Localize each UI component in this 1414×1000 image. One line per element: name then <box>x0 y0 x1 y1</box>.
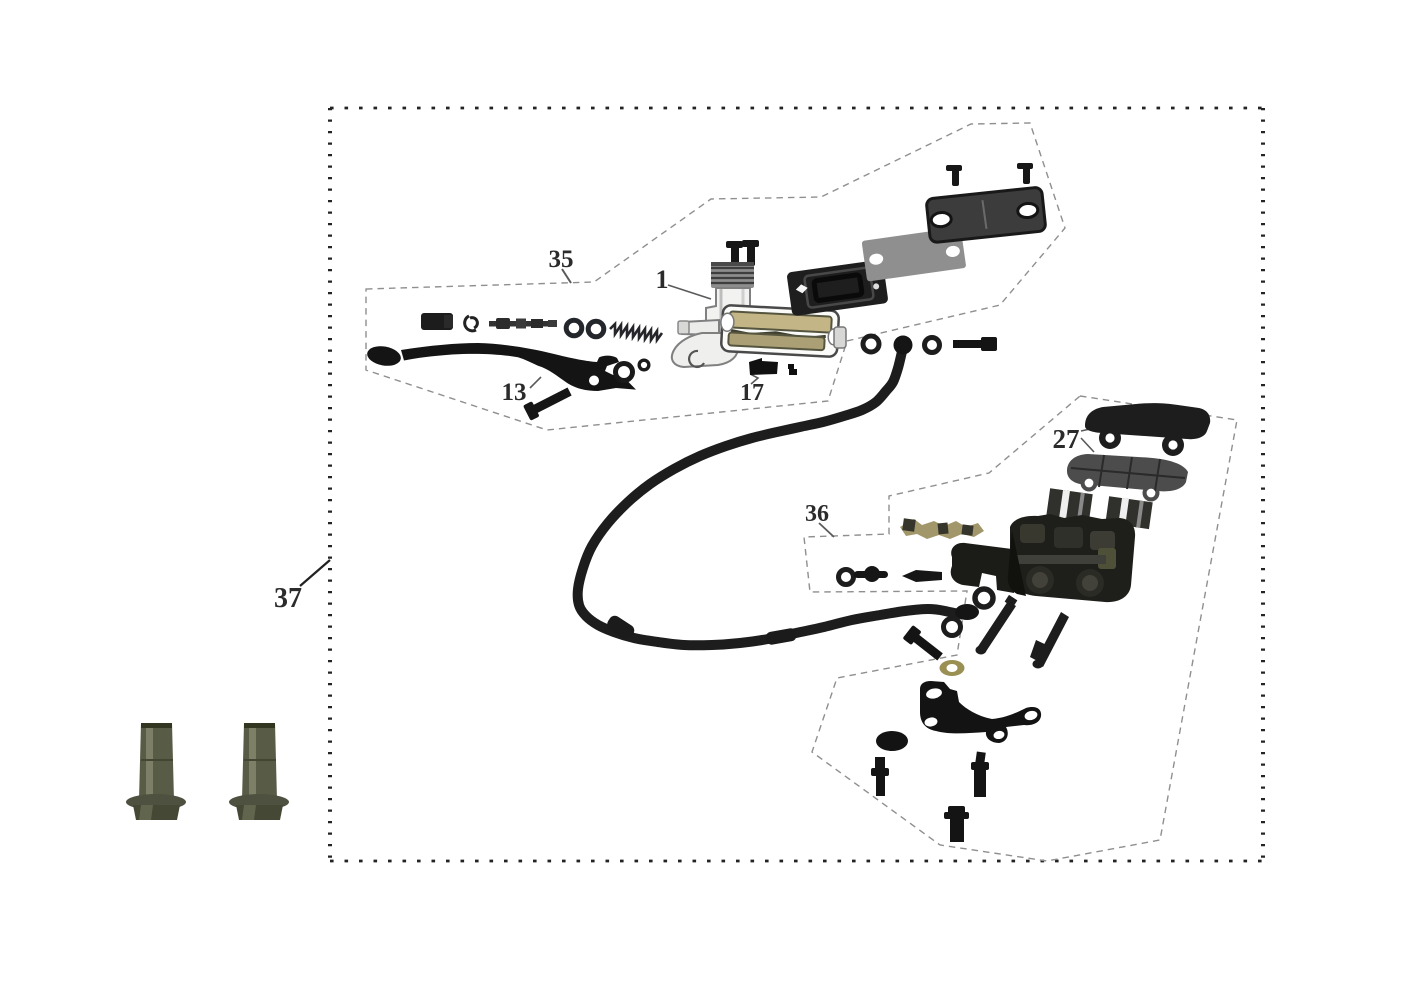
svg-text:1: 1 <box>656 265 669 294</box>
svg-text:37: 37 <box>274 583 302 614</box>
svg-text:36: 36 <box>805 501 829 527</box>
svg-text:35: 35 <box>549 246 574 273</box>
svg-text:27: 27 <box>1053 424 1080 454</box>
svg-text:13: 13 <box>502 379 527 406</box>
